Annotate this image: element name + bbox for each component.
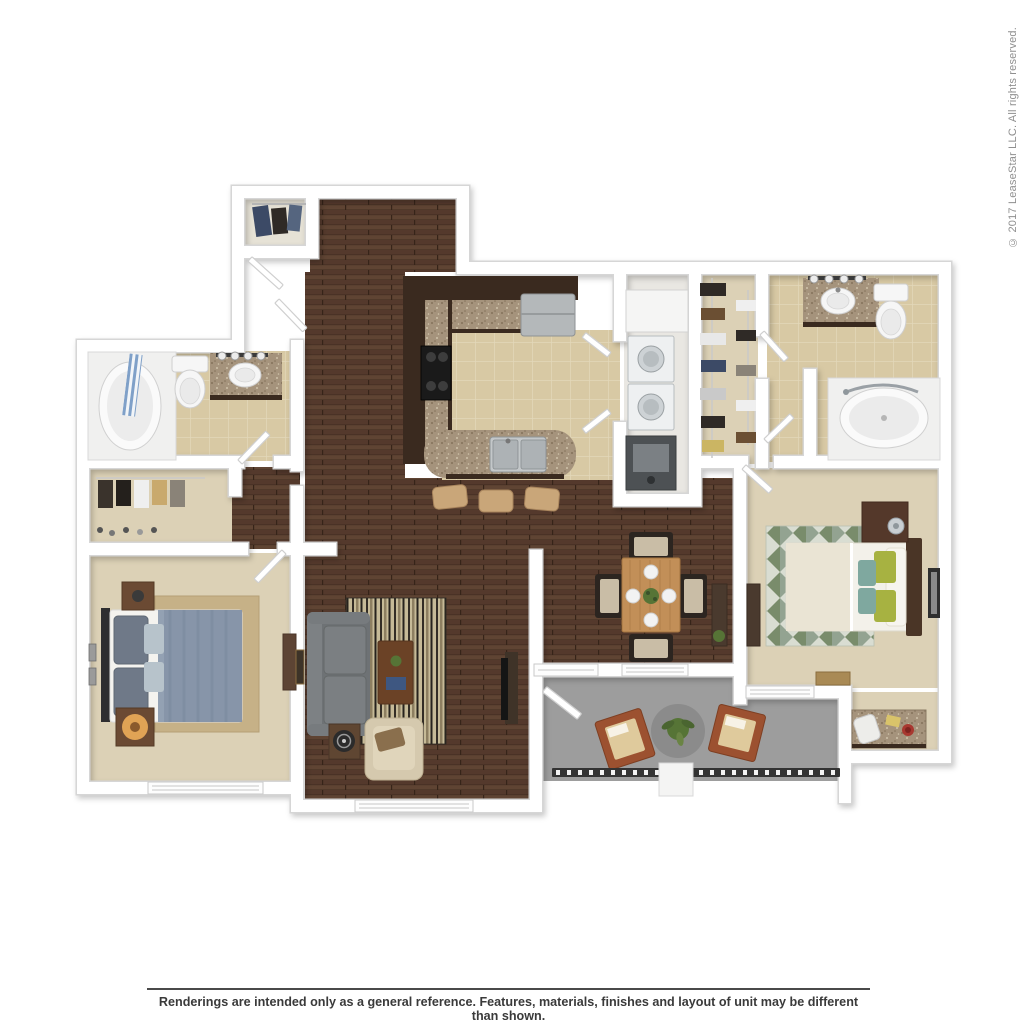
tv-console <box>501 652 518 724</box>
window-bedroom2 <box>746 686 814 698</box>
accent-pillow <box>144 662 164 692</box>
patio-slider <box>534 664 598 676</box>
hanging-clothes <box>98 480 185 508</box>
headboard2 <box>906 538 922 636</box>
headboard1 <box>101 608 110 722</box>
window-living <box>355 800 473 812</box>
pillow-lime <box>874 590 896 622</box>
hall-door <box>275 299 307 332</box>
lamp1b <box>130 722 140 732</box>
refrigerator <box>521 294 575 336</box>
bed2 <box>786 538 922 636</box>
sofa <box>307 612 370 736</box>
hall-floor <box>305 272 405 478</box>
pillow-teal <box>858 588 876 614</box>
toilet2 <box>874 284 908 339</box>
pillow-teal <box>858 560 876 586</box>
centerpiece-plant <box>643 588 659 604</box>
basket <box>816 672 850 685</box>
laundry-cabinet <box>626 290 688 332</box>
front-door <box>248 257 283 290</box>
armchair <box>365 718 423 780</box>
pillow-lime <box>874 551 896 583</box>
toilet1 <box>172 356 208 408</box>
pillow <box>114 616 148 664</box>
desk-nook <box>852 710 926 748</box>
window-bedroom1 <box>148 782 263 794</box>
dining-console <box>712 584 727 646</box>
side-table-speaker <box>329 724 360 759</box>
blanket2 <box>786 543 852 631</box>
utility-unit <box>626 436 676 490</box>
floor-plan-rendering <box>0 0 1024 1024</box>
vanity2 <box>803 278 879 327</box>
kitchen-island <box>424 430 576 479</box>
entry-hall-floor <box>310 196 463 272</box>
window-dining <box>622 664 688 676</box>
dresser1 <box>283 634 296 690</box>
dryer <box>628 384 674 430</box>
bed1 <box>101 608 242 722</box>
disclaimer-divider: Renderings are intended only as a genera… <box>147 988 870 1023</box>
accent-pillow <box>144 624 164 654</box>
washer <box>628 336 674 382</box>
coffee-table <box>378 641 413 704</box>
railing-post <box>659 763 693 796</box>
wall-art-living <box>296 650 304 684</box>
tv-screen <box>501 658 508 720</box>
dining-table <box>622 558 680 632</box>
console-bedroom2 <box>747 584 760 646</box>
disclaimer-text: Renderings are intended only as a genera… <box>147 995 870 1023</box>
range-stove <box>421 346 451 400</box>
bathtub2 <box>828 378 940 460</box>
lamp1a <box>132 590 144 602</box>
copyright-text: © 2017 LeaseStar LLC. All rights reserve… <box>1007 8 1019 248</box>
